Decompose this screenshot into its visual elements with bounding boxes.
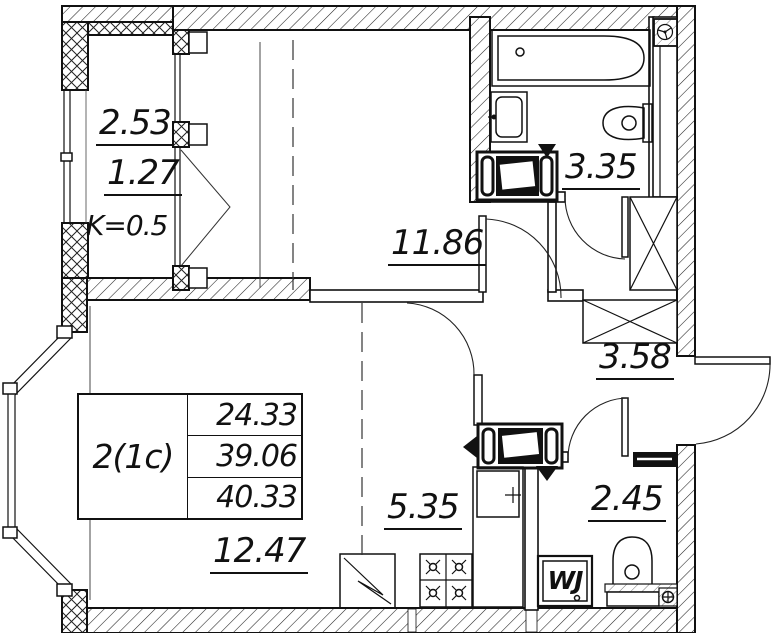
wc-toilet [613, 537, 652, 587]
bathroom-toilet [603, 104, 652, 142]
balcony-reduced-area-label: 1.27 [104, 156, 182, 196]
slide-direction-arrow [463, 436, 477, 458]
bathroom-door-leaf [622, 197, 628, 257]
slide-direction-arrow [536, 466, 558, 481]
wc-door-arc [568, 398, 628, 458]
kitchen-door-leaf [474, 375, 482, 425]
kitchen-wc-wall [525, 462, 538, 610]
built-in-wardrobes [583, 197, 677, 343]
bedroom-area-label: 11.86 [388, 226, 486, 266]
bathroom-door-arc [565, 197, 625, 259]
wc-area-label: 2.45 [588, 482, 666, 522]
bay-window-post [57, 584, 72, 596]
bay-corner-top [62, 278, 87, 332]
burner [426, 586, 440, 600]
bottom-wall-joint-2 [526, 610, 537, 632]
partition-pier-bottom [189, 268, 207, 288]
burner [426, 560, 440, 574]
bottom-wall [87, 608, 677, 633]
top-wall-balcony-inner [78, 22, 173, 35]
balcony-door-swing [181, 150, 230, 266]
vent-fan [654, 19, 677, 46]
living-room-area-label: 12.47 [210, 534, 308, 574]
washing-machine-label: WJ [541, 566, 589, 595]
bedroom-partition [310, 290, 483, 302]
sliding-door-kitchen [463, 424, 562, 481]
sliding-door-bathroom [477, 144, 557, 200]
top-wall [173, 6, 677, 30]
floor-plan: 2.53 1.27 K=0.5 11.86 3.35 3.58 2.45 5.3… [0, 0, 776, 633]
apartment-type-cell: 2(1c) [79, 395, 188, 518]
partition-post-mid [173, 122, 189, 147]
bathtub [492, 30, 650, 86]
burner [452, 586, 466, 600]
bathroom-area-label: 3.35 [562, 150, 640, 190]
bay-window-post [3, 527, 17, 538]
balcony-area-label: 2.53 [96, 106, 174, 146]
wc-counter [605, 584, 677, 606]
partition-post-bottom [173, 266, 189, 290]
hallway-area-label: 3.58 [596, 340, 674, 380]
top-wall-balcony-outer [62, 6, 173, 22]
kitchen-counter [473, 467, 523, 607]
hall-partition-stub [548, 202, 556, 292]
partition-post-top [173, 30, 189, 54]
bathroom-sink [488, 92, 527, 142]
bay-window [3, 326, 72, 596]
partition-pier-top [189, 32, 207, 53]
fridge [340, 554, 395, 608]
floor-plan-drawing [0, 0, 776, 633]
total-area-cell: 40.33 [188, 478, 301, 518]
living-area-cell: 24.33 [188, 395, 301, 436]
balcony-left-wall-top [62, 22, 88, 90]
balcony-window-post [61, 153, 72, 161]
apartment-area-cell: 39.06 [188, 436, 301, 477]
partition-pier-mid [189, 124, 207, 145]
kitchen-door-arc [407, 303, 474, 375]
entrance-door-arc [696, 362, 770, 444]
stove [420, 554, 472, 607]
wc-door-leaf [622, 398, 628, 456]
kitchen-area-label: 5.35 [384, 490, 462, 530]
balcony-coefficient-label: K=0.5 [86, 212, 167, 240]
bay-window-post [3, 383, 17, 394]
entrance-door-leaf [695, 357, 770, 364]
bay-window-post [57, 326, 72, 338]
right-wall-lower [677, 445, 695, 633]
apartment-area-table: 2(1c) 24.33 39.06 40.33 [77, 393, 303, 520]
burner [452, 560, 466, 574]
bottom-wall-joint [408, 609, 416, 632]
right-wall-upper [677, 6, 695, 356]
balcony-left-wall-bottom [62, 223, 88, 278]
